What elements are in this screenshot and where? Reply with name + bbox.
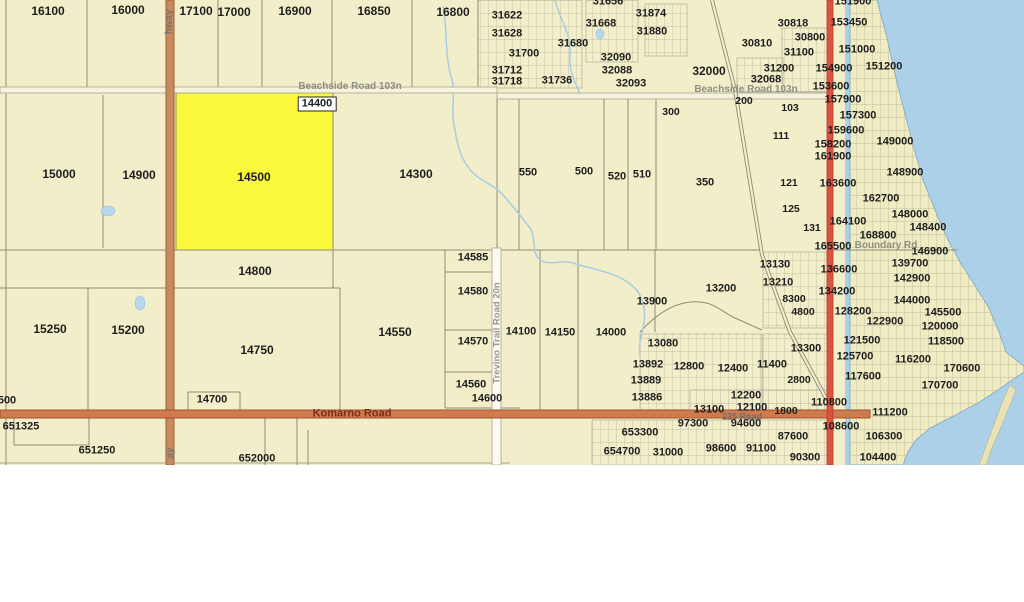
map-canvas	[0, 0, 1024, 465]
selected-parcel-14500[interactable]	[176, 93, 333, 250]
red-road	[827, 0, 833, 465]
trevino-trail-road	[492, 248, 501, 465]
highway-road	[166, 0, 174, 465]
screenshot-root: 1610016000171001700016900168501680031622…	[0, 0, 1024, 602]
parcel-map[interactable]: 1610016000171001700016900168501680031622…	[0, 0, 1024, 465]
komarno-road	[0, 410, 870, 418]
